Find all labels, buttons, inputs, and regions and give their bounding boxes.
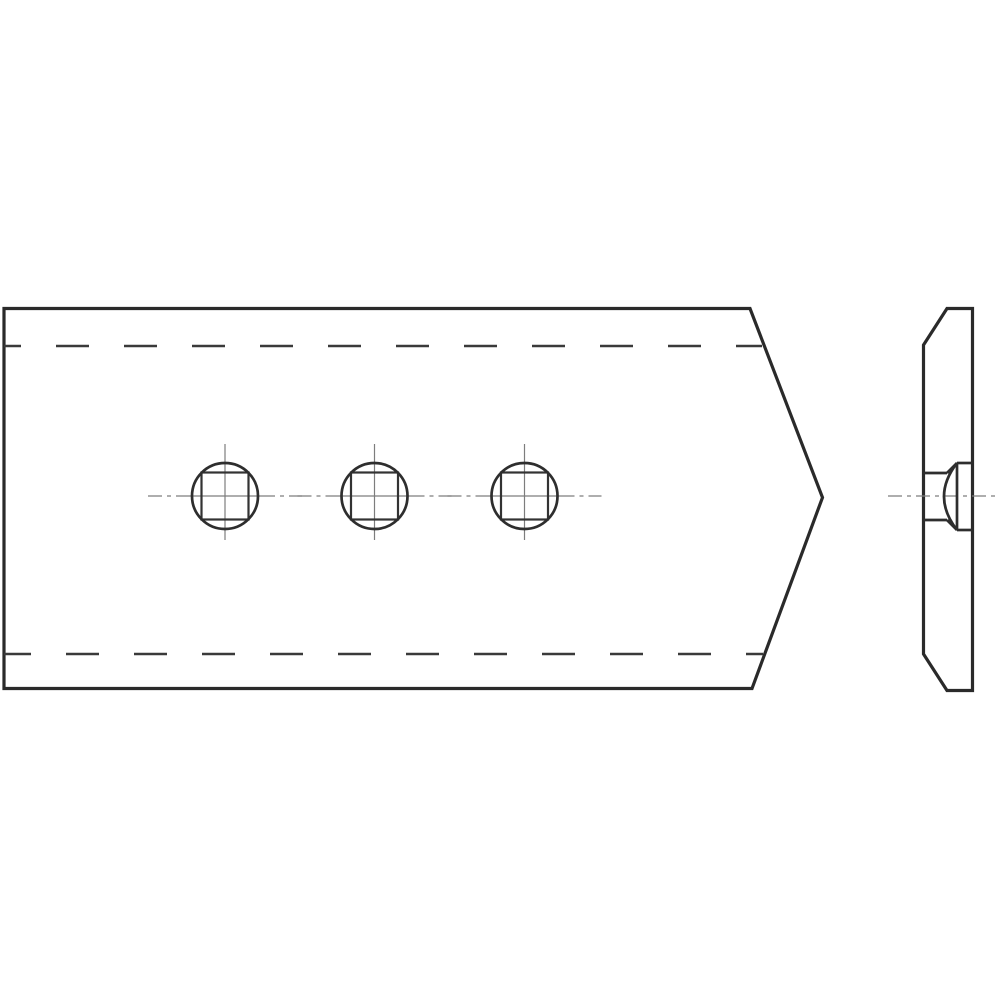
drawing-canvas <box>0 0 1000 1000</box>
technical-drawing-page <box>0 0 1000 1000</box>
bolt-hole-2 <box>298 444 452 540</box>
front-view-plate-outline <box>4 309 823 689</box>
bolt-hole-3 <box>448 444 602 540</box>
side-view <box>888 309 1000 691</box>
bolt-hole-1 <box>148 444 302 540</box>
side-view-plate-outline <box>924 309 973 691</box>
front-view <box>4 309 823 689</box>
